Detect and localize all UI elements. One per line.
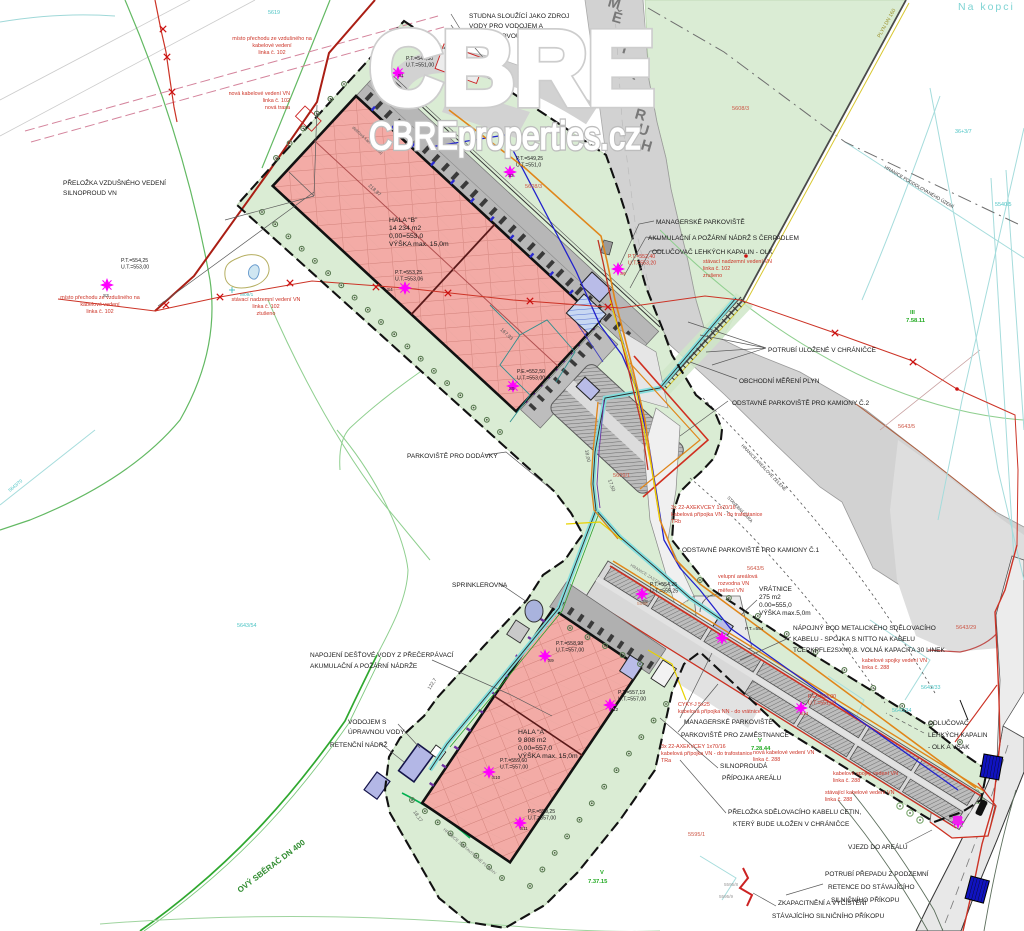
svg-text:stávací nadzemní vedení VN: stávací nadzemní vedení VN	[703, 259, 772, 265]
svg-text:7.58.11: 7.58.11	[906, 318, 926, 324]
svg-text:kabelová přípojka VN - do traf: kabelová přípojka VN - do trafostanice	[661, 751, 752, 757]
svg-text:měření VN: měření VN	[718, 588, 744, 594]
svg-text:PARKOVIŠTĚ PRO ZAMĚSTNANCE: PARKOVIŠTĚ PRO ZAMĚSTNANCE	[681, 730, 790, 739]
svg-text:místo přechodu ze vzdušného na: místo přechodu ze vzdušného na	[232, 36, 311, 42]
svg-text:3x 22-AXEKVCEY 1x70/16: 3x 22-AXEKVCEY 1x70/16	[661, 744, 726, 750]
svg-text:linka č. 288: linka č. 288	[862, 665, 889, 671]
svg-text:U.T.=553,00: U.T.=553,00	[517, 376, 545, 382]
svg-text:linka č. 102: linka č. 102	[258, 50, 285, 56]
svg-text:VÝŠKA max.5,0m: VÝŠKA max.5,0m	[759, 608, 811, 617]
svg-text:S3: S3	[103, 293, 109, 298]
svg-text:5643/34: 5643/34	[892, 708, 912, 714]
svg-text:S9: S9	[548, 658, 554, 663]
svg-text:AKUMULAČNÍ A POŽÁRNÍ NÁDRŽE: AKUMULAČNÍ A POŽÁRNÍ NÁDRŽE	[310, 661, 418, 670]
svg-text:0.00=555,0: 0.00=555,0	[759, 602, 792, 609]
svg-text:OBCHODNÍ MĚŘENÍ PLYN: OBCHODNÍ MĚŘENÍ PLYN	[739, 376, 820, 385]
svg-text:linka č. 288: linka č. 288	[753, 757, 780, 763]
svg-text:U.T.=553,00: U.T.=553,00	[121, 265, 149, 271]
svg-text:5643/29: 5643/29	[956, 625, 976, 631]
svg-text:kabelové vedení: kabelové vedení	[252, 43, 292, 49]
svg-text:CBRE: CBRE	[370, 11, 655, 127]
svg-text:P.T.=554: P.T.=554	[745, 626, 764, 632]
svg-text:PŘELOŽKA VZDUŠNÉHO VEDENÍ: PŘELOŽKA VZDUŠNÉHO VEDENÍ	[63, 178, 166, 187]
svg-text:275 m2: 275 m2	[759, 594, 781, 601]
svg-text:ODSTAVNÉ PARKOVIŠTĚ PRO KAMION: ODSTAVNÉ PARKOVIŠTĚ PRO KAMIONY Č.1	[682, 545, 820, 554]
svg-text:ODSTAVNÉ PARKOVIŠTĚ PRO KAMION: ODSTAVNÉ PARKOVIŠTĚ PRO KAMIONY Č.2	[732, 398, 870, 407]
svg-text:5643/5: 5643/5	[898, 424, 915, 430]
svg-text:U.T.=557,00: U.T.=557,00	[528, 816, 556, 822]
svg-text:U.T.=551,00: U.T.=551,00	[808, 701, 836, 707]
svg-text:P.T.=554,25: P.T.=554,25	[650, 582, 677, 588]
svg-text:PŘÍPOJKA AREÁLU: PŘÍPOJKA AREÁLU	[722, 773, 782, 782]
svg-text:ztušeno: ztušeno	[257, 311, 276, 317]
svg-text:kabelová přípojka NN - do vrát: kabelová přípojka NN - do vrátnice	[678, 709, 761, 715]
svg-text:5595/8: 5595/8	[724, 882, 738, 887]
svg-text:7.37.15: 7.37.15	[588, 879, 608, 885]
svg-text:S4: S4	[387, 287, 393, 292]
svg-text:5598: 5598	[637, 601, 648, 607]
svg-text:stávací nadzemní vedení VN: stávací nadzemní vedení VN	[232, 297, 301, 303]
svg-text:5608/3: 5608/3	[525, 184, 542, 190]
svg-text:P.T.=558,98: P.T.=558,98	[556, 641, 583, 647]
svg-text:CYKY-J 5x25: CYKY-J 5x25	[678, 702, 710, 708]
svg-text:P.F.=559,25: P.F.=559,25	[528, 809, 555, 815]
svg-text:MANAGERSKÉ PARKOVIŠTĚ: MANAGERSKÉ PARKOVIŠTĚ	[656, 217, 745, 226]
svg-text:SPRINKLEROVNA: SPRINKLEROVNA	[452, 582, 508, 589]
svg-text:RETENCE DO STÁVAJÍCÍHO: RETENCE DO STÁVAJÍCÍHO	[828, 882, 915, 891]
svg-text:VODOJEM S: VODOJEM S	[348, 719, 387, 726]
svg-text:rozvodna VN: rozvodna VN	[718, 581, 749, 587]
svg-text:TCEPKPFLE2SXN0,8. VOLNÁ KAPACI: TCEPKPFLE2SXN0,8. VOLNÁ KAPACITA 30 LINE…	[793, 645, 946, 654]
svg-text:PARKOVIŠTĚ PRO DODÁVKY: PARKOVIŠTĚ PRO DODÁVKY	[407, 451, 498, 460]
svg-text:POTRUBÍ PŘEPADU Z PODZEMNÍ: POTRUBÍ PŘEPADU Z PODZEMNÍ	[825, 869, 929, 878]
svg-text:S11: S11	[520, 826, 528, 831]
svg-text:S12: S12	[610, 707, 619, 712]
svg-text:U.T.=551,0: U.T.=551,0	[516, 163, 541, 169]
svg-text:S2: S2	[508, 173, 514, 178]
svg-text:POTRUBÍ ULOŽENÉ V CHRÁNIČCE: POTRUBÍ ULOŽENÉ V CHRÁNIČCE	[768, 345, 877, 354]
svg-text:P.E.=552,50: P.E.=552,50	[517, 369, 545, 375]
svg-text:U.T.=553,06: U.T.=553,06	[395, 277, 423, 283]
svg-text:P.T.=559,60: P.T.=559,60	[500, 758, 527, 764]
svg-text:NÁPOJNÝ BOD METALICKÉHO SDĚLOV: NÁPOJNÝ BOD METALICKÉHO SDĚLOVACÍHO	[793, 623, 936, 632]
svg-text:linka č. 102: linka č. 102	[86, 309, 113, 315]
svg-text:linka č. 102: linka č. 102	[703, 266, 730, 272]
svg-text:PŘELOŽKA SDĚLOVACÍHO KABELU CE: PŘELOŽKA SDĚLOVACÍHO KABELU CETIN,	[728, 807, 861, 816]
svg-text:VJEZD DO AREÁLU: VJEZD DO AREÁLU	[848, 842, 908, 851]
svg-text:S10: S10	[492, 775, 501, 780]
svg-text:U.T.=555,25: U.T.=555,25	[650, 589, 678, 595]
svg-text:U.T.=553,20: U.T.=553,20	[628, 261, 656, 267]
svg-text:kabelová přípojka VN - do traf: kabelová přípojka VN - do trafostanice	[671, 512, 762, 518]
svg-text:MANAGERSKÉ PARKOVIŠTĚ: MANAGERSKÉ PARKOVIŠTĚ	[684, 717, 773, 726]
svg-text:5595/1: 5595/1	[688, 832, 705, 838]
svg-text:5595/9: 5595/9	[719, 894, 733, 899]
svg-text:P.T.=554,25: P.T.=554,25	[121, 258, 148, 264]
svg-text:0,00=553,0: 0,00=553,0	[389, 233, 423, 240]
svg-text:U.T.=557,00: U.T.=557,00	[500, 765, 528, 771]
svg-text:TRa: TRa	[661, 758, 671, 764]
svg-text:7.28.44: 7.28.44	[751, 746, 771, 752]
svg-text:5608/3: 5608/3	[732, 106, 749, 112]
svg-text:P.E.=553,00: P.E.=553,00	[808, 694, 836, 700]
svg-text:V: V	[600, 870, 604, 876]
svg-text:14 234 m2: 14 234 m2	[389, 225, 421, 232]
svg-text:zrušeno: zrušeno	[703, 273, 722, 279]
svg-text:5619: 5619	[268, 10, 280, 16]
svg-text:nová kabelové vedení VN: nová kabelové vedení VN	[229, 91, 291, 97]
svg-text:U.T.=557,00: U.T.=557,00	[618, 697, 646, 703]
svg-text:kabelové spojky vedení VN: kabelové spojky vedení VN	[833, 771, 898, 777]
svg-text:S5: S5	[509, 386, 515, 391]
svg-text:5643/54: 5643/54	[237, 623, 257, 629]
svg-text:ODLUČOVAČ LEHKÝCH KAPALIN - OL: ODLUČOVAČ LEHKÝCH KAPALIN - OLK	[652, 247, 773, 256]
svg-text:kabelové spojky vedení VN: kabelové spojky vedení VN	[862, 658, 927, 664]
svg-text:kabelové vedení: kabelové vedení	[80, 302, 120, 308]
svg-text:LEHKÝCH KAPALIN: LEHKÝCH KAPALIN	[928, 730, 988, 739]
svg-text:ODLUČOVAČ: ODLUČOVAČ	[928, 718, 969, 727]
svg-text:linka č. 288: linka č. 288	[833, 778, 860, 784]
svg-text:nová trasa: nová trasa	[265, 105, 290, 111]
svg-text:AKUMULAČNÍ A POŽÁRNÍ NÁDRŽ S Č: AKUMULAČNÍ A POŽÁRNÍ NÁDRŽ S ČERPADLEM	[648, 233, 799, 242]
svg-text:P.T.=553,25: P.T.=553,25	[395, 270, 422, 276]
svg-text:9 808 m2: 9 808 m2	[518, 737, 547, 744]
svg-text:TRb: TRb	[671, 519, 681, 525]
svg-text:VÝŠKA max. 15,0m: VÝŠKA max. 15,0m	[389, 239, 449, 248]
svg-text:HALA “B”: HALA “B”	[389, 217, 418, 224]
svg-text:5609/1: 5609/1	[613, 473, 630, 479]
svg-text:III: III	[910, 310, 915, 316]
svg-text:NAPOJENÍ DEŠŤOVÉ VODY Z PŘEČER: NAPOJENÍ DEŠŤOVÉ VODY Z PŘEČERPÁVACÍ	[310, 650, 454, 659]
svg-text:- OLK A VSAK: - OLK A VSAK	[928, 744, 970, 751]
svg-text:36+3/7: 36+3/7	[955, 129, 972, 135]
svg-text:0,00=557,0: 0,00=557,0	[518, 745, 552, 752]
svg-text:Na kopci: Na kopci	[958, 1, 1015, 13]
svg-text:ÚPRAVNOU VODY: ÚPRAVNOU VODY	[348, 727, 405, 736]
svg-text:S14: S14	[800, 711, 809, 716]
svg-text:P.T.=552,40: P.T.=552,40	[628, 254, 655, 260]
svg-text:5540/5: 5540/5	[995, 202, 1012, 208]
svg-text:stávající kabelové vedení VN: stávající kabelové vedení VN	[825, 790, 895, 796]
svg-text:ZKAPACITNĚNÍ A VYČIŠTĚNÍ: ZKAPACITNĚNÍ A VYČIŠTĚNÍ	[778, 898, 867, 907]
svg-text:linka č. 102: linka č. 102	[263, 98, 290, 104]
svg-text:STÁVAJÍCÍHO SILNIČNÍHO PŘÍKOPU: STÁVAJÍCÍHO SILNIČNÍHO PŘÍKOPU	[772, 911, 885, 920]
svg-text:KTERÝ BUDE ULOŽEN V CHRÁNIČCE: KTERÝ BUDE ULOŽEN V CHRÁNIČCE	[733, 819, 850, 828]
svg-text:RETENČNÍ NÁDRŽ: RETENČNÍ NÁDRŽ	[330, 740, 387, 749]
svg-text:linka č. 102: linka č. 102	[252, 304, 279, 310]
svg-text:místo přechodu ze vzdušného na: místo přechodu ze vzdušného na	[60, 295, 139, 301]
svg-text:VRÁTNICE: VRÁTNICE	[759, 584, 793, 593]
svg-text:V: V	[758, 738, 762, 744]
svg-text:5643/5: 5643/5	[747, 566, 764, 572]
svg-text:KABELU - SPOJKA S NITTO NA KAB: KABELU - SPOJKA S NITTO NA KABELU	[793, 636, 915, 643]
svg-text:U.T.=557,00: U.T.=557,00	[556, 648, 584, 654]
svg-text:SILNOPROUD VN: SILNOPROUD VN	[63, 190, 117, 197]
svg-text:HALA “A”: HALA “A”	[518, 729, 547, 736]
svg-text:velupní areálová: velupní areálová	[718, 574, 758, 580]
svg-text:5643/33: 5643/33	[921, 685, 941, 691]
svg-text:3x 22-AXEKVCEY 1x70/16: 3x 22-AXEKVCEY 1x70/16	[671, 505, 736, 511]
svg-text:S6: S6	[620, 271, 626, 276]
svg-text:P.T.=557,19: P.T.=557,19	[618, 690, 645, 696]
svg-text:CBREproperties.cz: CBREproperties.cz	[369, 115, 641, 158]
svg-text:linka č. 288: linka č. 288	[825, 797, 852, 803]
